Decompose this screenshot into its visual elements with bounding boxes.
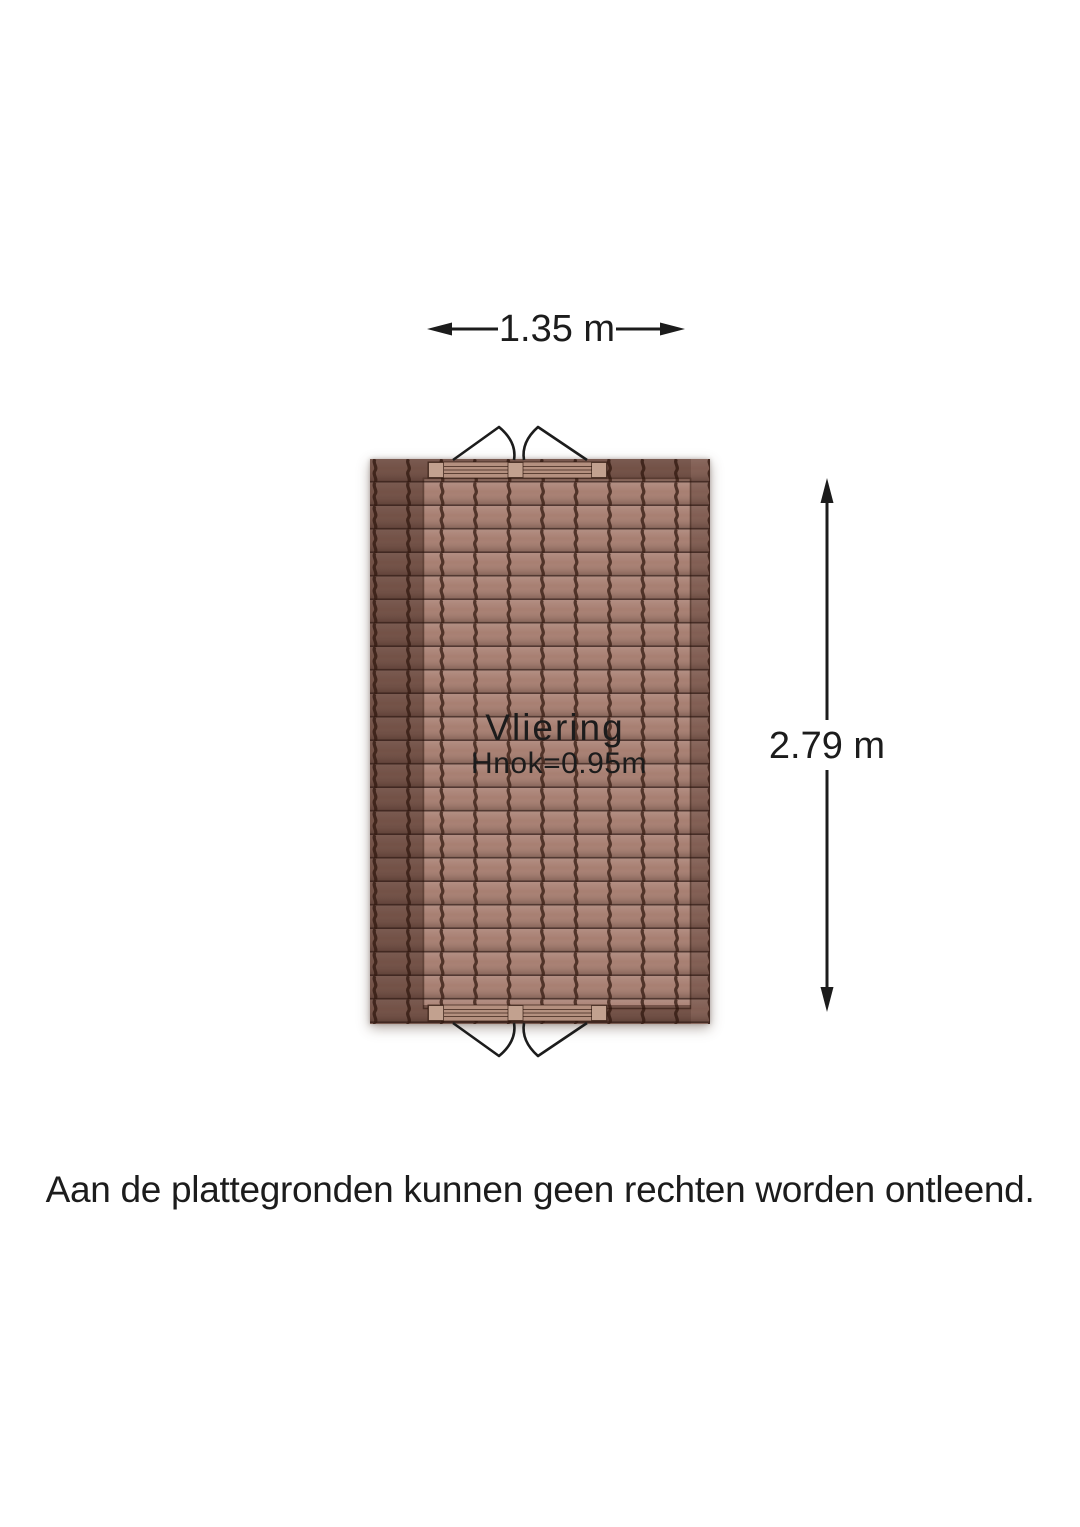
floor-plan-page: 1.35 m 2.79 m Vliering Hnok=0.95m Aan de… [0,0,1080,1527]
window-swing-top [453,427,587,460]
window-swing-bottom [453,1023,587,1056]
height-dimension-label: 2.79 m [737,726,917,766]
room-label: Vliering [440,708,670,748]
roof-window-bottom [428,1005,607,1021]
disclaimer-text: Aan de plattegronden kunnen geen rechten… [0,1169,1080,1211]
width-dimension-label: 1.35 m [477,309,637,349]
roof-window-top [428,462,607,478]
ridge-height-label: Hnok=0.95m [444,748,674,780]
